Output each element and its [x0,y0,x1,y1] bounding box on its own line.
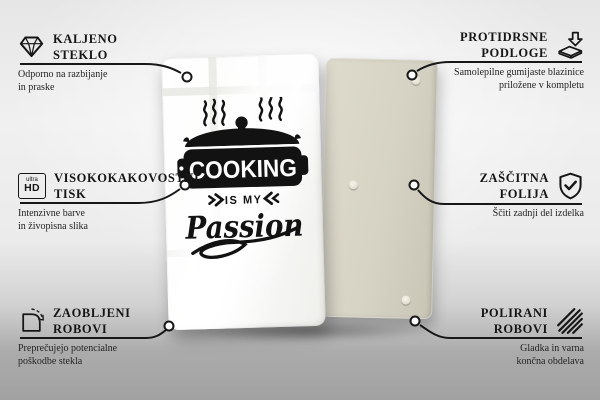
feature-rounded-edges: ZAOBLJENI ROBOVI Preprečujejo potencialn… [18,303,193,368]
feature-title: KALJENO [53,31,118,47]
product-feature-infographic: COOKING IS MY Passion [0,0,600,400]
feature-protective-film: ZAŠČITNA FOLIJA Ščiti zadnji del izdelka [399,168,584,221]
design-words-is-my: IS MY [225,194,263,207]
shield-check-icon [557,172,584,200]
feature-title: FOLIJA [480,186,549,202]
feature-description: Gladka in varna [409,343,584,356]
feature-title: PODLOGE [460,45,548,61]
feature-anti-slip-pads: PROTIDRSNE PODLOGE Samolepilne gumijaste… [389,27,584,92]
design-word-cooking: COOKING [188,155,297,185]
feature-description: in živopisna slika [18,221,193,234]
ultra-hd-icon: ultra HD [18,173,46,199]
diagonal-lines-icon [556,307,584,335]
feature-tempered-glass: KALJENO STEKLO Odporno na razbijanje in … [18,29,183,94]
feature-polished-edges: POLIRANI ROBOVI Gladka in varna končna o… [409,303,584,368]
feature-title: ZAOBLJENI [53,305,131,321]
feature-description: Ščiti zadnji del izdelka [399,208,584,221]
feature-description: poškodbe stekla [18,356,193,369]
feature-title: POLIRANI [481,305,548,321]
anti-slip-pad [349,180,358,189]
feature-title: ROBOVI [53,321,131,337]
feature-description: priložene v kompletu [389,80,584,93]
feature-title: STEKLO [53,47,118,63]
feature-description: Preprečujejo potencialne [18,343,193,356]
feature-description: Intenzivne barve [18,208,193,221]
feature-description: in praske [18,82,183,95]
feature-description: končna obdelava [409,356,584,369]
feature-title: PROTIDRSNE [460,29,548,45]
diamond-icon [18,33,45,60]
rounded-corner-icon [18,307,45,334]
feature-title: VISOKOKAKOVOSTNI [54,170,200,186]
feature-high-quality-print: ultra HD VISOKOKAKOVOSTNI TISK Intenzivn… [18,168,193,233]
feature-description: Samolepilne gumijaste blazinice [389,67,584,80]
pad-arrow-icon [556,31,584,59]
feature-title: TISK [54,186,200,202]
feature-title: ZAŠČITNA [480,170,549,186]
feature-description: Odporno na razbijanje [18,69,183,82]
feature-title: ROBOVI [481,321,548,337]
